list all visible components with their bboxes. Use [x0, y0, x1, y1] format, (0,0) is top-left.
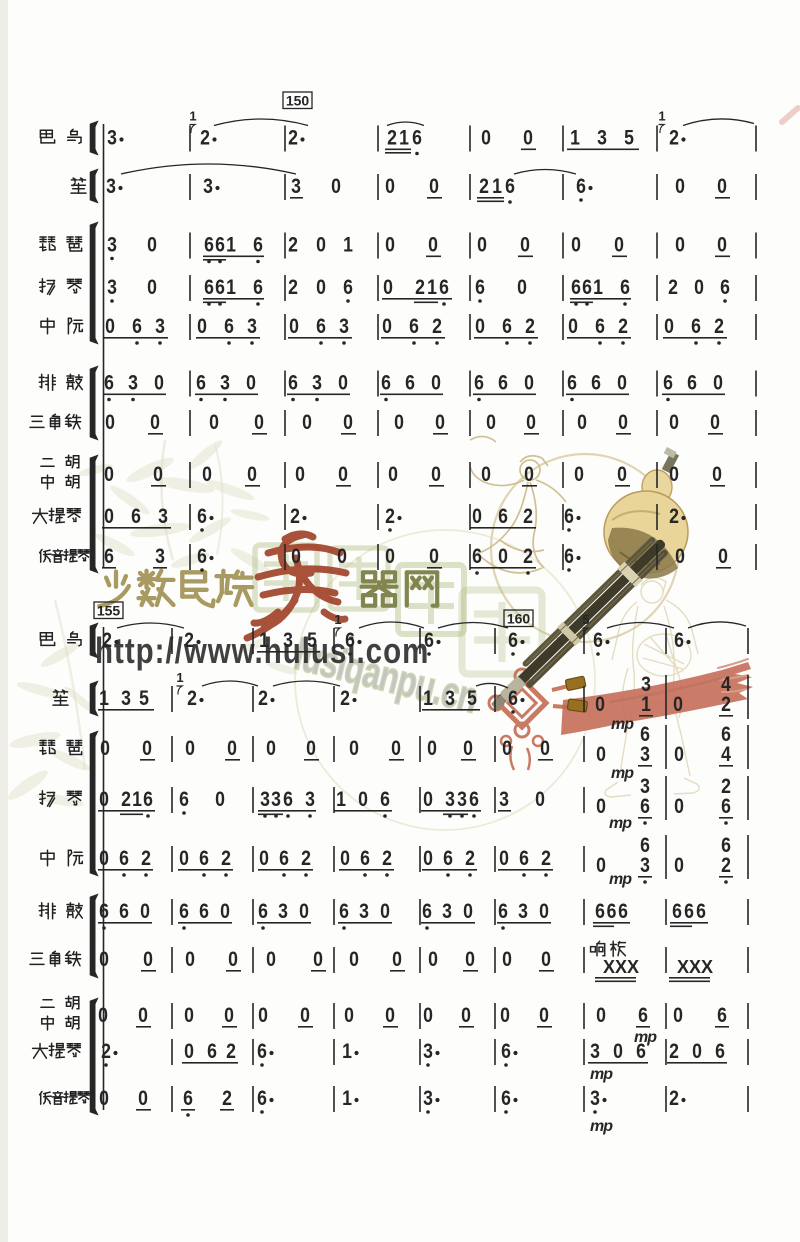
svg-text:2: 2: [258, 687, 268, 711]
svg-text:0: 0: [247, 463, 257, 487]
svg-text:2: 2: [387, 126, 397, 150]
svg-text:6: 6: [576, 175, 586, 199]
svg-text:3: 3: [423, 1040, 433, 1064]
svg-text:6: 6: [691, 315, 701, 339]
svg-text:0: 0: [104, 463, 114, 487]
svg-text:5: 5: [582, 612, 589, 627]
svg-text:0: 0: [246, 371, 256, 395]
svg-text:3: 3: [518, 900, 528, 924]
svg-text:3: 3: [590, 1087, 600, 1111]
svg-text:0: 0: [481, 463, 491, 487]
svg-text:1: 1: [226, 233, 236, 257]
svg-text:0: 0: [435, 411, 445, 435]
svg-text:0: 0: [227, 737, 237, 761]
svg-text:6: 6: [279, 847, 289, 871]
svg-text:0: 0: [185, 737, 195, 761]
svg-text:6: 6: [179, 900, 189, 924]
svg-text:1: 1: [641, 693, 651, 717]
svg-text:0: 0: [614, 233, 624, 257]
svg-text:0: 0: [517, 276, 527, 300]
svg-text:3: 3: [106, 175, 116, 199]
svg-text:0: 0: [431, 463, 441, 487]
svg-text:mp: mp: [609, 871, 632, 888]
svg-text:0: 0: [502, 737, 512, 761]
svg-text:3: 3: [640, 854, 650, 878]
svg-text:6: 6: [501, 1040, 511, 1064]
svg-text:0: 0: [197, 315, 207, 339]
svg-text:2: 2: [101, 1040, 111, 1064]
svg-text:0: 0: [475, 315, 485, 339]
svg-text:0: 0: [391, 737, 401, 761]
svg-text:0: 0: [675, 545, 685, 569]
svg-text:3: 3: [107, 276, 117, 300]
svg-text:6: 6: [505, 175, 515, 199]
svg-text:6: 6: [595, 900, 605, 924]
svg-text:1: 1: [658, 109, 665, 124]
svg-text:6: 6: [131, 505, 141, 529]
svg-text:0: 0: [429, 175, 439, 199]
svg-text:6: 6: [591, 371, 601, 395]
svg-text:2: 2: [184, 629, 194, 653]
svg-text:0: 0: [673, 1004, 683, 1028]
svg-text:6: 6: [224, 315, 234, 339]
svg-text:0: 0: [674, 743, 684, 767]
svg-text:150: 150: [286, 93, 310, 109]
svg-text:2: 2: [121, 788, 131, 812]
svg-text:6: 6: [196, 371, 206, 395]
svg-text:0: 0: [150, 411, 160, 435]
svg-text:X: X: [627, 957, 639, 977]
svg-text:6: 6: [215, 233, 225, 257]
svg-text:0: 0: [179, 847, 189, 871]
svg-text:0: 0: [595, 693, 605, 717]
svg-text:3: 3: [155, 315, 165, 339]
svg-text:2: 2: [714, 315, 724, 339]
svg-text:1: 1: [226, 276, 236, 300]
svg-text:0: 0: [316, 233, 326, 257]
svg-text:6: 6: [409, 315, 419, 339]
svg-text:3: 3: [312, 371, 322, 395]
svg-text:0: 0: [254, 411, 264, 435]
svg-text:2: 2: [669, 1040, 679, 1064]
svg-text:6: 6: [638, 1004, 648, 1028]
svg-text:mp: mp: [609, 815, 632, 832]
svg-text:0: 0: [539, 900, 549, 924]
svg-text:0: 0: [306, 737, 316, 761]
svg-text:0: 0: [669, 411, 679, 435]
svg-text:1: 1: [343, 233, 353, 257]
svg-text:0: 0: [463, 737, 473, 761]
svg-text:160: 160: [507, 611, 531, 627]
svg-text:5: 5: [624, 126, 634, 150]
svg-text:0: 0: [388, 463, 398, 487]
svg-text:6: 6: [501, 1087, 511, 1111]
svg-text:0: 0: [500, 1004, 510, 1028]
svg-text:0: 0: [571, 233, 581, 257]
svg-text:0: 0: [202, 463, 212, 487]
svg-text:0: 0: [220, 900, 230, 924]
svg-text:0: 0: [523, 126, 533, 150]
svg-text:1: 1: [593, 276, 603, 300]
svg-text:2: 2: [288, 126, 298, 150]
svg-text:0: 0: [266, 737, 276, 761]
svg-text:6: 6: [132, 315, 142, 339]
svg-text:0: 0: [358, 788, 368, 812]
svg-text:1: 1: [342, 1087, 352, 1111]
svg-text:1: 1: [334, 612, 341, 627]
svg-text:2: 2: [432, 315, 442, 339]
svg-text:6: 6: [715, 1040, 725, 1064]
svg-text:2: 2: [141, 847, 151, 871]
svg-text:6: 6: [469, 788, 479, 812]
svg-text:6: 6: [607, 900, 617, 924]
svg-text:6: 6: [412, 126, 422, 150]
svg-text:6: 6: [687, 371, 697, 395]
svg-text:2: 2: [465, 847, 475, 871]
svg-text:mp: mp: [611, 716, 634, 733]
svg-text:0: 0: [498, 545, 508, 569]
svg-text:2: 2: [525, 315, 535, 339]
svg-text:3: 3: [271, 788, 281, 812]
svg-text:6: 6: [257, 1087, 267, 1111]
svg-text:3: 3: [220, 371, 230, 395]
svg-text:0: 0: [539, 1004, 549, 1028]
svg-text:0: 0: [154, 371, 164, 395]
svg-text:2: 2: [721, 854, 731, 878]
svg-text:6: 6: [197, 545, 207, 569]
svg-text:0: 0: [349, 737, 359, 761]
svg-text:0: 0: [502, 948, 512, 972]
svg-text:0: 0: [331, 175, 341, 199]
svg-text:1: 1: [427, 276, 437, 300]
svg-text:0: 0: [694, 276, 704, 300]
svg-text:3: 3: [158, 505, 168, 529]
svg-text:0: 0: [143, 948, 153, 972]
svg-text:2: 2: [382, 847, 392, 871]
svg-text:0: 0: [266, 948, 276, 972]
svg-text:X: X: [689, 957, 701, 977]
svg-text:0: 0: [463, 900, 473, 924]
svg-text:0: 0: [99, 948, 109, 972]
svg-text:0: 0: [104, 505, 114, 529]
svg-text:0: 0: [481, 126, 491, 150]
svg-text:0: 0: [524, 463, 534, 487]
svg-text:mp: mp: [590, 1118, 613, 1135]
svg-text:0: 0: [142, 737, 152, 761]
svg-text:6: 6: [424, 629, 434, 653]
svg-text:0: 0: [344, 1004, 354, 1028]
svg-text:1: 1: [423, 687, 433, 711]
svg-text:0: 0: [596, 795, 606, 819]
svg-text:0: 0: [718, 545, 728, 569]
svg-text:3: 3: [423, 1087, 433, 1111]
svg-text:0: 0: [338, 371, 348, 395]
svg-text:3: 3: [305, 788, 315, 812]
svg-text:5: 5: [307, 629, 317, 653]
svg-text:0: 0: [568, 315, 578, 339]
svg-text:3: 3: [499, 788, 509, 812]
svg-text:6: 6: [498, 900, 508, 924]
svg-text:6: 6: [143, 788, 153, 812]
svg-text:6: 6: [519, 847, 529, 871]
svg-text:0: 0: [382, 315, 392, 339]
svg-text:6: 6: [215, 276, 225, 300]
svg-text:6: 6: [502, 315, 512, 339]
svg-text:3: 3: [260, 788, 270, 812]
svg-text:3: 3: [597, 126, 607, 150]
svg-text:0: 0: [224, 1004, 234, 1028]
svg-text:3: 3: [457, 788, 467, 812]
svg-text:0: 0: [295, 463, 305, 487]
svg-text:6: 6: [663, 371, 673, 395]
svg-text:5: 5: [467, 687, 477, 711]
svg-text:6: 6: [721, 795, 731, 819]
svg-text:X: X: [615, 957, 627, 977]
svg-text:0: 0: [385, 1004, 395, 1028]
svg-text:0: 0: [184, 1004, 194, 1028]
svg-text:6: 6: [472, 545, 482, 569]
svg-text:6: 6: [498, 371, 508, 395]
svg-text:6: 6: [99, 900, 109, 924]
svg-text:0: 0: [228, 948, 238, 972]
svg-text:1: 1: [492, 175, 502, 199]
svg-text:2: 2: [523, 505, 533, 529]
svg-text:6: 6: [564, 505, 574, 529]
svg-text:1: 1: [336, 788, 346, 812]
svg-text:0: 0: [340, 847, 350, 871]
svg-text:0: 0: [669, 463, 679, 487]
svg-text:0: 0: [302, 411, 312, 435]
svg-text:0: 0: [140, 900, 150, 924]
svg-text:3: 3: [442, 900, 452, 924]
svg-text:0: 0: [428, 233, 438, 257]
svg-text:6: 6: [439, 276, 449, 300]
svg-text:6: 6: [199, 900, 209, 924]
svg-text:6: 6: [253, 233, 263, 257]
svg-text:0: 0: [385, 233, 395, 257]
svg-text:2: 2: [221, 847, 231, 871]
svg-text:0: 0: [138, 1004, 148, 1028]
svg-text:0: 0: [675, 233, 685, 257]
svg-text:6: 6: [422, 900, 432, 924]
svg-text:6: 6: [564, 545, 574, 569]
svg-text:2: 2: [340, 687, 350, 711]
svg-text:0: 0: [258, 1004, 268, 1028]
svg-text:6: 6: [475, 276, 485, 300]
svg-text:0: 0: [99, 788, 109, 812]
svg-text:2: 2: [290, 505, 300, 529]
svg-text:6: 6: [204, 233, 214, 257]
svg-text:3: 3: [640, 743, 650, 767]
svg-text:0: 0: [147, 233, 157, 257]
svg-text:6: 6: [380, 788, 390, 812]
svg-text:6: 6: [197, 505, 207, 529]
svg-text:0: 0: [138, 1087, 148, 1111]
svg-text:4: 4: [721, 743, 731, 767]
svg-text:0: 0: [675, 175, 685, 199]
svg-text:2: 2: [415, 276, 425, 300]
svg-text:0: 0: [383, 276, 393, 300]
svg-text:0: 0: [429, 545, 439, 569]
svg-text:0: 0: [596, 1004, 606, 1028]
svg-text:0: 0: [477, 233, 487, 257]
svg-text:0: 0: [423, 788, 433, 812]
svg-text:0: 0: [617, 463, 627, 487]
svg-text:3: 3: [278, 900, 288, 924]
svg-text:3: 3: [155, 545, 165, 569]
svg-text:0: 0: [343, 411, 353, 435]
svg-text:mp: mp: [590, 1066, 613, 1083]
svg-text:0: 0: [338, 463, 348, 487]
svg-text:2: 2: [200, 126, 210, 150]
svg-text:X: X: [677, 957, 689, 977]
svg-text:0: 0: [674, 854, 684, 878]
svg-text:0: 0: [713, 371, 723, 395]
svg-text:2: 2: [618, 315, 628, 339]
svg-text:0: 0: [316, 276, 326, 300]
svg-text:0: 0: [535, 788, 545, 812]
svg-text:6: 6: [345, 629, 355, 653]
svg-text:0: 0: [596, 854, 606, 878]
svg-text:0: 0: [289, 315, 299, 339]
svg-text:0: 0: [380, 900, 390, 924]
svg-text:2: 2: [669, 1087, 679, 1111]
svg-text:2: 2: [187, 687, 197, 711]
svg-text:6: 6: [508, 629, 518, 653]
svg-text:1: 1: [99, 687, 109, 711]
svg-text:1: 1: [132, 788, 142, 812]
svg-text:6: 6: [119, 900, 129, 924]
svg-text:0: 0: [520, 233, 530, 257]
svg-text:6: 6: [283, 788, 293, 812]
svg-text:X: X: [701, 957, 713, 977]
svg-text:0: 0: [577, 411, 587, 435]
svg-text:6: 6: [720, 276, 730, 300]
svg-text:0: 0: [717, 233, 727, 257]
svg-text:0: 0: [98, 1004, 108, 1028]
svg-text:6: 6: [204, 276, 214, 300]
svg-text:0: 0: [618, 411, 628, 435]
svg-text:0: 0: [524, 371, 534, 395]
svg-text:0: 0: [105, 411, 115, 435]
svg-text:6: 6: [696, 900, 706, 924]
svg-text:0: 0: [423, 1004, 433, 1028]
svg-text:0: 0: [349, 948, 359, 972]
svg-text:6: 6: [508, 687, 518, 711]
svg-text:0: 0: [300, 1004, 310, 1028]
svg-text:0: 0: [153, 463, 163, 487]
svg-text:0: 0: [692, 1040, 702, 1064]
svg-text:3: 3: [445, 687, 455, 711]
svg-text:1: 1: [189, 109, 196, 124]
svg-text:2: 2: [721, 693, 731, 717]
svg-text:0: 0: [100, 737, 110, 761]
svg-text:0: 0: [428, 948, 438, 972]
svg-text:2: 2: [523, 545, 533, 569]
svg-text:0: 0: [259, 847, 269, 871]
svg-text:1: 1: [176, 670, 183, 685]
svg-text:0: 0: [617, 371, 627, 395]
svg-text:0: 0: [461, 1004, 471, 1028]
svg-text:0: 0: [673, 693, 683, 717]
svg-text:0: 0: [185, 948, 195, 972]
svg-text:0: 0: [99, 847, 109, 871]
svg-text:6: 6: [199, 847, 209, 871]
svg-text:6: 6: [381, 371, 391, 395]
svg-text:2: 2: [479, 175, 489, 199]
svg-text:6: 6: [684, 900, 694, 924]
svg-text:6: 6: [343, 276, 353, 300]
svg-text:6: 6: [104, 545, 114, 569]
svg-text:0: 0: [299, 900, 309, 924]
svg-text:0: 0: [613, 1040, 623, 1064]
svg-text:3: 3: [121, 687, 131, 711]
svg-text:6: 6: [567, 371, 577, 395]
svg-text:6: 6: [339, 900, 349, 924]
svg-text:2: 2: [226, 1040, 236, 1064]
svg-text:0: 0: [674, 795, 684, 819]
svg-text:6: 6: [593, 629, 603, 653]
svg-text:6: 6: [258, 900, 268, 924]
svg-text:3: 3: [445, 788, 455, 812]
svg-text:mp: mp: [611, 765, 634, 782]
svg-text:6: 6: [474, 371, 484, 395]
svg-text:0: 0: [710, 411, 720, 435]
svg-text:6: 6: [119, 847, 129, 871]
svg-text:X: X: [603, 957, 615, 977]
svg-text:3: 3: [291, 175, 301, 199]
svg-text:2: 2: [669, 505, 679, 529]
svg-text:3: 3: [107, 233, 117, 257]
svg-text:0: 0: [209, 411, 219, 435]
svg-text:3: 3: [359, 900, 369, 924]
svg-text:0: 0: [105, 315, 115, 339]
svg-text:3: 3: [107, 126, 117, 150]
svg-text:0: 0: [313, 948, 323, 972]
svg-text:2: 2: [669, 126, 679, 150]
svg-text:6: 6: [620, 276, 630, 300]
svg-text:1: 1: [259, 629, 269, 653]
svg-text:6: 6: [253, 276, 263, 300]
svg-text:6: 6: [104, 371, 114, 395]
svg-text:0: 0: [337, 545, 347, 569]
svg-text:1: 1: [570, 126, 580, 150]
svg-text:6: 6: [288, 371, 298, 395]
svg-text:2: 2: [102, 629, 112, 653]
svg-text:0: 0: [184, 1040, 194, 1064]
svg-text:2: 2: [288, 276, 298, 300]
svg-text:0: 0: [465, 948, 475, 972]
svg-text:5: 5: [139, 687, 149, 711]
svg-text:0: 0: [712, 463, 722, 487]
svg-text:0: 0: [486, 411, 496, 435]
svg-text:2: 2: [222, 1087, 232, 1111]
svg-text:0: 0: [147, 276, 157, 300]
svg-text:0: 0: [215, 788, 225, 812]
svg-text:6: 6: [207, 1040, 217, 1064]
svg-text:6: 6: [316, 315, 326, 339]
svg-text:3: 3: [590, 1040, 600, 1064]
svg-text:0: 0: [291, 545, 301, 569]
svg-text:6: 6: [717, 1004, 727, 1028]
svg-text:0: 0: [526, 411, 536, 435]
svg-text:3: 3: [203, 175, 213, 199]
svg-text:0: 0: [540, 737, 550, 761]
svg-text:0: 0: [499, 847, 509, 871]
svg-text:0: 0: [431, 371, 441, 395]
svg-text:0: 0: [394, 411, 404, 435]
svg-text:6: 6: [183, 1087, 193, 1111]
